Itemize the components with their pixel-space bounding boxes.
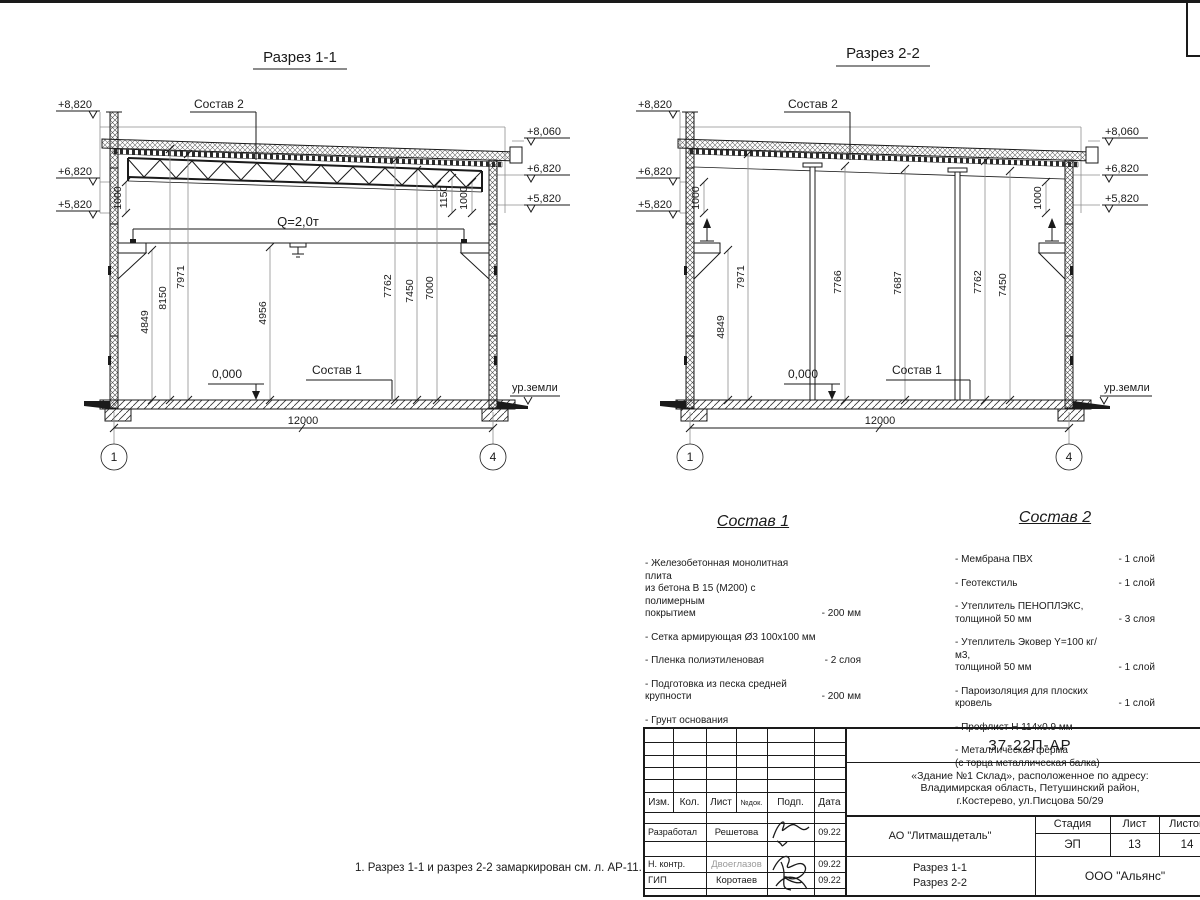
sheet-value: 13 xyxy=(1110,833,1159,856)
overall-dim: 12000 1 4 xyxy=(101,412,506,470)
svg-text:4849: 4849 xyxy=(139,310,151,334)
foundation-left xyxy=(105,409,131,421)
svg-text:+8,820: +8,820 xyxy=(58,99,92,111)
drawing-name: Разрез 1-1 Разрез 2-2 xyxy=(845,856,1035,895)
crane-capacity-label: Q=2,0т xyxy=(277,214,319,229)
svg-text:+8,060: +8,060 xyxy=(527,126,561,138)
item-value: - 3 слоя xyxy=(1111,614,1155,627)
item-text: - Геотекстиль xyxy=(955,578,1018,591)
ground-level-label: ур.земли xyxy=(512,382,558,394)
item-value: - 1 слой xyxy=(1110,578,1155,591)
ground-level-mark xyxy=(1100,396,1152,404)
svg-text:+5,820: +5,820 xyxy=(1105,193,1139,205)
item-value: - 200 мм xyxy=(814,608,861,621)
right-wall xyxy=(489,160,497,408)
crane-beam xyxy=(130,229,467,257)
svg-text:7971: 7971 xyxy=(735,265,747,289)
svg-text:7000: 7000 xyxy=(424,276,436,300)
list-item: - Геотекстиль - 1 слой xyxy=(955,578,1155,591)
axis-1: 1 xyxy=(111,450,118,464)
item-value: - 1 слой xyxy=(1110,554,1155,567)
crane-trolley xyxy=(290,243,306,247)
svg-text:1000: 1000 xyxy=(458,186,470,210)
small-dims: 1000 1150 1000 xyxy=(112,174,476,217)
ground-level-mark xyxy=(510,396,560,404)
svg-text:12000: 12000 xyxy=(288,415,319,427)
list-item: - Пароизоляция для плоских кровель - 1 с… xyxy=(955,686,1155,711)
zero-level-arrow xyxy=(252,391,260,400)
list-item: - Подготовка из песка средней крупности … xyxy=(645,679,861,704)
col-data: Дата xyxy=(814,792,845,812)
item-value: - 1 слой xyxy=(1110,662,1155,675)
row-role: Н. контр. xyxy=(645,856,706,872)
list-item: - Сетка армирующая Ø3 100х100 мм xyxy=(645,632,861,645)
item-text: - Утеплитель Эковер Y=100 кг/м3, толщино… xyxy=(955,637,1110,675)
item-text: - Пароизоляция для плоских кровель xyxy=(955,686,1110,711)
item-text: - Подготовка из песка средней крупности xyxy=(645,679,787,704)
foundation-right xyxy=(1058,409,1084,421)
sostav1-leader-label: Состав 1 xyxy=(892,363,942,377)
elevation-marks-right: +8,060 +6,820 +5,820 xyxy=(1102,126,1148,212)
col-ndok: №док. xyxy=(736,792,767,812)
col-podp: Подп. xyxy=(767,792,814,812)
row-role: ГИП xyxy=(645,872,706,888)
composition-1-title: Состав 1 xyxy=(645,512,861,532)
svg-text:+5,820: +5,820 xyxy=(527,193,561,205)
svg-text:+6,820: +6,820 xyxy=(1105,163,1139,175)
svg-text:7687: 7687 xyxy=(892,271,904,295)
svg-text:7766: 7766 xyxy=(832,270,844,294)
row-date: 09.22 xyxy=(814,856,845,872)
list-item: - Железобетонная монолитная плита из бет… xyxy=(645,558,861,621)
left-wall xyxy=(686,112,694,408)
small-dims: 1000 1000 xyxy=(690,178,1050,217)
svg-text:1000: 1000 xyxy=(1032,186,1044,210)
roof-edge-cap xyxy=(1086,147,1098,163)
list-item: - Пленка полиэтиленовая - 2 слоя xyxy=(645,655,861,668)
right-wall xyxy=(1065,160,1073,408)
elevation-marks-right: +8,060 +6,820 +5,820 xyxy=(524,126,570,212)
zero-level-label: 0,000 xyxy=(212,367,242,381)
svg-text:8150: 8150 xyxy=(157,286,169,310)
sheets-value: 14 xyxy=(1159,833,1200,856)
stage-value: ЭП xyxy=(1035,833,1110,856)
ground-wedge-left xyxy=(660,401,686,409)
ceiling-edge-line xyxy=(694,167,1065,179)
floor-slab xyxy=(100,400,515,409)
col-list: Лист xyxy=(706,792,736,812)
item-text: - Грунт основания xyxy=(645,715,728,728)
col-kol: Кол. xyxy=(673,792,706,812)
svg-text:1000: 1000 xyxy=(112,186,124,210)
svg-text:7450: 7450 xyxy=(404,279,416,303)
zero-level-arrow xyxy=(828,391,836,400)
crane-consoles xyxy=(694,218,1065,279)
col-izm: Изм. xyxy=(645,792,673,812)
sostav1-leader-label: Состав 1 xyxy=(312,363,362,377)
item-text: - Сетка армирующая Ø3 100х100 мм xyxy=(645,632,816,645)
svg-text:+6,820: +6,820 xyxy=(638,166,672,178)
height-dims: 4849 8150 7971 4956 7762 7450 7000 xyxy=(139,145,441,404)
svg-text:7971: 7971 xyxy=(175,265,187,289)
company: АО "Литмашдеталь" xyxy=(845,815,1035,856)
section-1-1-title: Разрез 1-1 xyxy=(263,49,337,66)
crane-consoles xyxy=(118,243,489,279)
item-value: - 200 мм xyxy=(814,691,861,704)
signature-2 xyxy=(773,856,807,890)
section-2-2-title: Разрез 2-2 xyxy=(846,45,920,62)
elevation-marks-left: +8,820 +6,820 +5,820 xyxy=(56,99,100,218)
list-item: - Мембрана ПВХ - 1 слой xyxy=(955,554,1155,567)
svg-text:1000: 1000 xyxy=(690,186,702,210)
sections-drawing: Разрез 1-1 Q=2,0т xyxy=(0,0,1200,510)
row-date: 09.22 xyxy=(814,872,845,888)
svg-text:7450: 7450 xyxy=(997,273,1009,297)
row-name: Двоеглазов xyxy=(706,856,767,872)
svg-text:+5,820: +5,820 xyxy=(58,199,92,211)
signature-1 xyxy=(773,822,809,846)
svg-text:4849: 4849 xyxy=(715,315,727,339)
composition-2-title: Состав 2 xyxy=(955,508,1155,528)
section-2-2: Разрез 2-2 xyxy=(636,45,1152,470)
axis-1: 1 xyxy=(687,450,694,464)
svg-text:4956: 4956 xyxy=(257,301,269,325)
wall-joint-pads xyxy=(108,266,497,365)
list-item: - Утеплитель Эковер Y=100 кг/м3, толщино… xyxy=(955,637,1155,675)
svg-text:+8,060: +8,060 xyxy=(1105,126,1139,138)
sostav2-leader-label: Состав 2 xyxy=(194,97,244,111)
item-text: - Пленка полиэтиленовая xyxy=(645,655,764,668)
sostav1-leader xyxy=(306,380,392,399)
interior-columns xyxy=(803,163,967,400)
section-1-1: Разрез 1-1 Q=2,0т xyxy=(56,49,570,470)
object-address: «Здание №1 Склад», расположенное по адре… xyxy=(845,762,1200,815)
list-item: - Грунт основания xyxy=(645,715,861,728)
stage-label: Стадия xyxy=(1035,815,1110,833)
svg-text:7762: 7762 xyxy=(382,274,394,298)
foundation-left xyxy=(681,409,707,421)
row-name: Коротаев xyxy=(706,872,767,888)
signatures xyxy=(767,812,814,895)
item-text: - Железобетонная монолитная плита из бет… xyxy=(645,558,814,621)
sheets-label: Листов xyxy=(1159,815,1200,833)
svg-text:+8,820: +8,820 xyxy=(638,99,672,111)
zero-level-label: 0,000 xyxy=(788,367,818,381)
roof-edge-cap xyxy=(510,147,522,163)
crane-hook xyxy=(292,247,304,257)
item-value: - 1 слой xyxy=(1110,698,1155,711)
svg-text:7762: 7762 xyxy=(972,270,984,294)
doc-number: 37-22П-АР xyxy=(845,729,1200,762)
axis-4: 4 xyxy=(490,450,497,464)
foundation-right xyxy=(482,409,508,421)
row-name: Решетова xyxy=(706,823,767,841)
item-value: - 2 слоя xyxy=(817,655,861,668)
ground-level-label: ур.земли xyxy=(1104,382,1150,394)
svg-text:+6,820: +6,820 xyxy=(58,166,92,178)
composition-list-1: Состав 1 - Железобетонная монолитная пли… xyxy=(645,512,861,738)
item-text: - Мембрана ПВХ xyxy=(955,554,1033,567)
row-role: Разработал xyxy=(645,823,706,841)
svg-text:+6,820: +6,820 xyxy=(527,163,561,175)
height-dims: 4849 7971 7766 7687 7762 7450 xyxy=(715,150,1014,404)
sheet-note: 1. Разрез 1-1 и разрез 2-2 замаркирован … xyxy=(355,862,655,874)
svg-text:+5,820: +5,820 xyxy=(638,199,672,211)
axis-4: 4 xyxy=(1066,450,1073,464)
svg-text:12000: 12000 xyxy=(865,415,896,427)
overall-dim: 12000 1 4 xyxy=(677,412,1082,470)
list-item: - Утеплитель ПЕНОПЛЭКС, толщиной 50 мм -… xyxy=(955,601,1155,626)
item-text: - Утеплитель ПЕНОПЛЭКС, толщиной 50 мм xyxy=(955,601,1083,626)
ground-wedge-left xyxy=(84,401,110,409)
floor-slab xyxy=(676,400,1091,409)
sheet-label: Лист xyxy=(1110,815,1159,833)
elevation-marks-left: +8,820 +6,820 +5,820 xyxy=(636,99,680,218)
row-date: 09.22 xyxy=(814,823,845,841)
svg-text:1150: 1150 xyxy=(438,186,450,209)
sostav2-leader-label: Состав 2 xyxy=(788,97,838,111)
left-wall xyxy=(110,112,118,408)
org-name: ООО "Альянс" xyxy=(1035,856,1200,895)
title-block: Изм. Кол. Лист №док. Подп. Дата Разработ… xyxy=(643,727,1200,897)
